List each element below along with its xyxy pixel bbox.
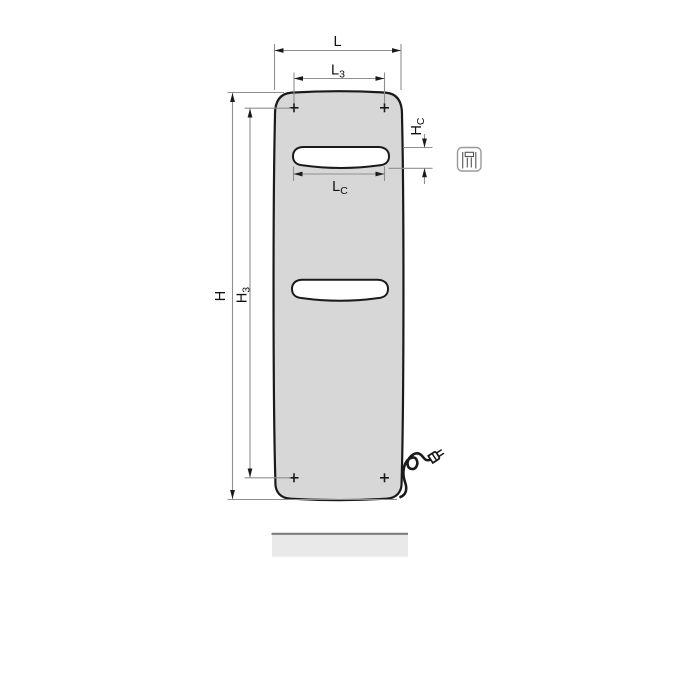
radiator-dimension-diagram: L L3 LC H H3 [0,0,700,700]
radiator-connection-pictogram-icon [458,148,482,172]
power-plug-icon [428,448,444,463]
dimension-label-H3: H3 [235,287,253,303]
floor-bar [272,534,409,557]
floor-bar-fill [272,535,408,557]
power-cable [401,448,445,497]
drawing-canvas: L L3 LC H H3 [0,0,700,700]
middle-air-slot [292,280,388,301]
cable-wire [401,453,431,497]
dimension-label-L: L [333,34,341,50]
dimension-label-L3: L3 [331,63,345,81]
top-air-slot [293,147,389,168]
dimension-label-HC: HC [409,117,427,135]
dimension-label-H: H [213,291,229,301]
